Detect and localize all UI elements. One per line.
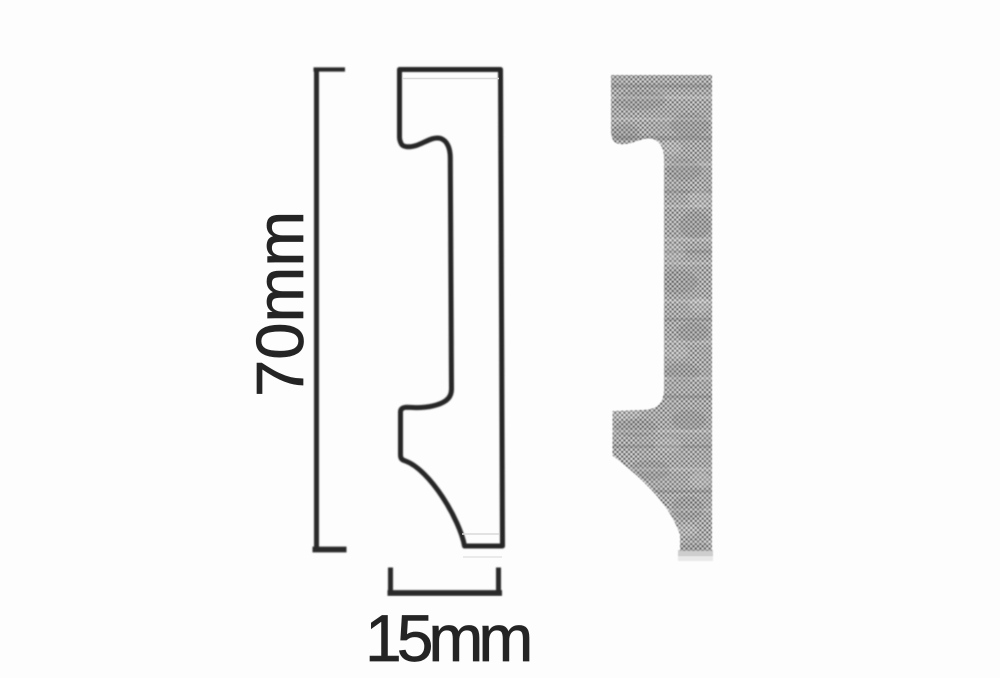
svg-text:70mm: 70mm: [243, 211, 318, 397]
svg-text:15mm: 15mm: [365, 601, 529, 675]
